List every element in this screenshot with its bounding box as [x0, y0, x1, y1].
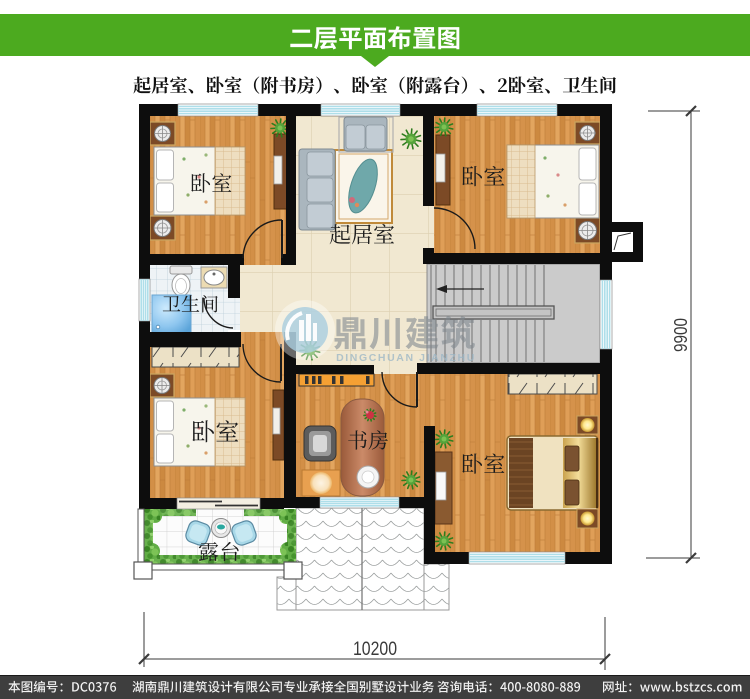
svg-text:9900: 9900 [671, 318, 691, 352]
svg-text:10200: 10200 [353, 639, 397, 660]
svg-text:DINGCHUAN JIANZHU: DINGCHUAN JIANZHU [336, 352, 476, 364]
